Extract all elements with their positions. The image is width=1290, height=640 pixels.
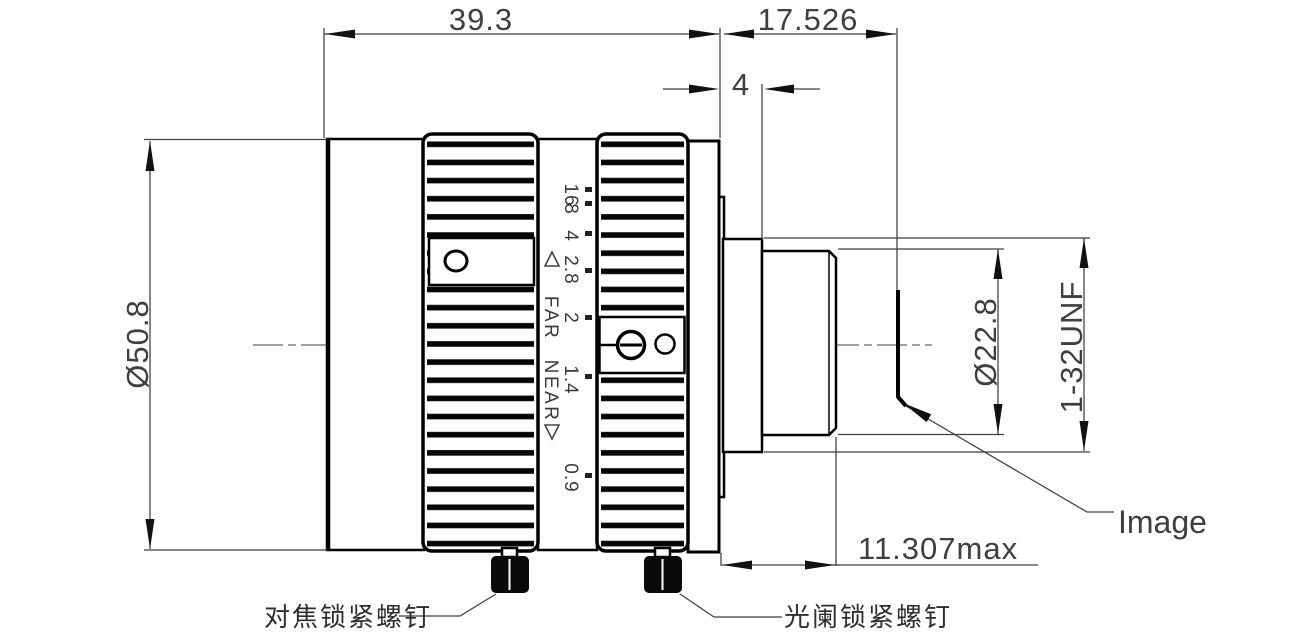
dim-rear-protrusion-value: 11.307max xyxy=(858,531,1018,566)
fstop-8: 8 xyxy=(560,203,581,215)
fstop-1_4: 1.4 xyxy=(560,365,581,394)
image-plane-label: Image xyxy=(1118,504,1207,540)
iris-lock-screw-label: 光阑锁紧螺钉 xyxy=(784,602,952,632)
rear-plate xyxy=(688,141,719,552)
image-leader-arrowhead xyxy=(903,403,931,422)
focus-lock-screw-callout: 对焦锁紧螺钉 xyxy=(264,594,496,632)
lens-technical-drawing: FAR NEAR 16 8 4 2.8 2 1.4 0.9 Image xyxy=(0,0,1290,640)
dim-flange-focal-distance: 17.526 xyxy=(724,2,896,39)
dim-body-diameter-value: Ø50.8 xyxy=(120,299,155,388)
front-barrel xyxy=(327,139,424,550)
iris-lock-screw xyxy=(644,548,682,593)
fstop-2: 2 xyxy=(560,312,581,324)
fstop-4: 4 xyxy=(560,230,581,242)
iris-lock-screw-callout: 光阑锁紧螺钉 xyxy=(680,594,952,632)
dim-front-length: 39.3 xyxy=(324,2,720,138)
aperture-pin-hole xyxy=(656,335,675,354)
iris-screw-neck xyxy=(655,548,670,557)
fstop-0_9: 0.9 xyxy=(560,463,581,492)
focus-ring xyxy=(423,134,538,551)
dim-mount-diameter: Ø22.8 xyxy=(838,249,1004,435)
aperture-ring xyxy=(597,134,688,551)
mount-cylinder xyxy=(762,251,836,435)
focus-screw-neck xyxy=(502,548,517,557)
dim-front-length-value: 39.3 xyxy=(449,2,513,37)
focus-lock-screw xyxy=(491,548,529,593)
focus-lock-screw-label: 对焦锁紧螺钉 xyxy=(264,602,432,632)
image-plane: Image xyxy=(897,28,1207,540)
focus-index-hole xyxy=(445,251,467,271)
dim-mount-diameter-value: Ø22.8 xyxy=(968,297,1003,386)
flange-block xyxy=(723,239,762,452)
dim-step-value: 4 xyxy=(732,67,750,102)
drawing-canvas: FAR NEAR 16 8 4 2.8 2 1.4 0.9 Image xyxy=(0,0,1290,640)
far-label: FAR xyxy=(540,296,561,340)
dim-ffd-value: 17.526 xyxy=(758,2,859,37)
dim-rear-protrusion: 11.307max xyxy=(721,437,1038,570)
fstop-2_8: 2.8 xyxy=(560,255,581,284)
focus-ring-knurl xyxy=(427,138,534,548)
dim-mount-thread-value: 1-32UNF xyxy=(1054,281,1089,414)
near-label: NEAR xyxy=(540,360,561,423)
